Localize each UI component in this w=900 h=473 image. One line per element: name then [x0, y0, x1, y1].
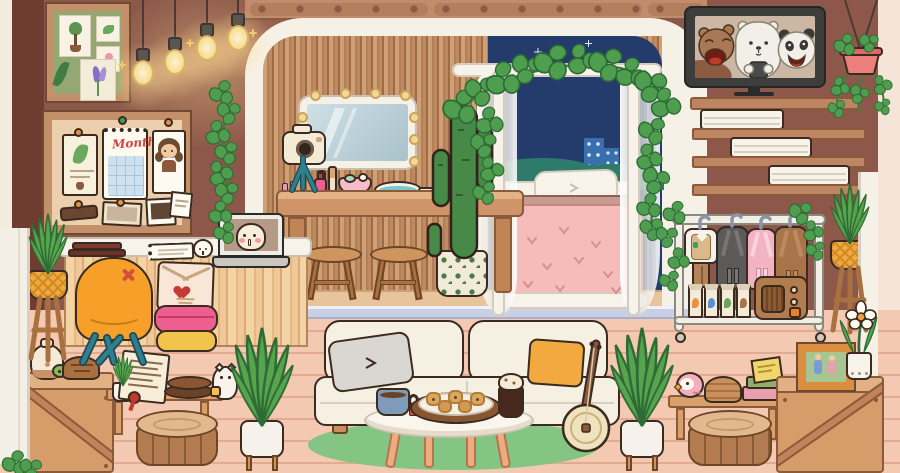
powder-puff	[358, 173, 368, 182]
vanity-table-leg	[494, 217, 512, 293]
mirror-bulb	[409, 134, 420, 145]
rack-top-bar[interactable]	[672, 214, 826, 225]
mirror-bulb	[370, 88, 381, 99]
vanity-table-top[interactable]	[276, 190, 524, 217]
round-box-pink[interactable]	[154, 305, 218, 333]
outfit-uniform[interactable]	[684, 228, 718, 264]
push-pin	[164, 118, 173, 127]
poster-line	[70, 176, 90, 178]
white-book-stack[interactable]	[700, 109, 784, 130]
edison-bulb[interactable]	[164, 49, 186, 75]
radio-dial[interactable]	[790, 298, 798, 306]
tv-stand-base	[734, 92, 774, 96]
portrait-dress	[162, 160, 176, 172]
tv-screen	[695, 16, 815, 78]
maroon-book-stack[interactable]	[68, 249, 126, 257]
rack-wheel	[675, 332, 686, 343]
room-scene: Month	[0, 0, 900, 473]
tree-pot	[70, 45, 81, 52]
push-pin	[74, 200, 83, 209]
butterfly-glyph	[103, 25, 114, 34]
turtle-figurine[interactable]	[62, 356, 100, 380]
poster-line	[70, 170, 94, 172]
star	[585, 40, 592, 47]
cookie[interactable]	[438, 400, 452, 413]
round-box-yellow[interactable]	[156, 330, 217, 352]
wood-tray[interactable]	[167, 376, 212, 390]
heart-icon	[178, 281, 194, 296]
white-book-stack[interactable]	[730, 137, 812, 158]
rack-post	[814, 216, 824, 332]
calendar-month-label: Month	[112, 134, 157, 151]
lipstick[interactable]	[328, 166, 337, 192]
portrait-face	[161, 144, 177, 158]
pinned-note[interactable]	[169, 191, 194, 219]
stool-seat[interactable]	[370, 246, 428, 263]
botany-card-butterfly	[96, 16, 120, 42]
pot-leg	[272, 455, 278, 471]
cookie[interactable]	[458, 400, 472, 413]
stool-rung	[314, 280, 350, 285]
white-book-stack[interactable]	[768, 165, 850, 186]
wall-calendar[interactable]: Month	[102, 128, 148, 200]
camera-button	[316, 137, 322, 142]
rack-post	[674, 216, 684, 332]
mirror-bulb	[400, 90, 411, 101]
camera[interactable]	[282, 131, 326, 165]
cookie[interactable]	[470, 392, 485, 406]
plant-stand-basket[interactable]	[28, 270, 68, 300]
pot-leg	[652, 455, 658, 471]
maroon-book-stack[interactable]	[72, 242, 122, 250]
beam-plate	[250, 3, 428, 16]
certificate-scroll[interactable]	[118, 350, 171, 405]
flower-pot[interactable]	[846, 352, 872, 380]
frappe-cream	[498, 373, 524, 391]
star	[534, 48, 542, 56]
wood-stump-top	[136, 410, 218, 438]
laptop-character	[236, 223, 266, 251]
cactus-pot[interactable]	[436, 250, 488, 297]
leaf-poster[interactable]	[62, 134, 98, 196]
mirror-bulb	[340, 88, 351, 99]
leaf-sprig	[52, 60, 70, 88]
radio-dial[interactable]	[790, 286, 798, 294]
pot-leg	[626, 455, 632, 471]
ceiling-beam	[245, 0, 707, 20]
snake-plant-pot[interactable]	[620, 420, 664, 458]
yellow-pillow[interactable]	[526, 338, 585, 388]
nail-polish-cap	[317, 172, 324, 180]
stool-seat[interactable]	[304, 246, 362, 263]
lucky-cat-figurine[interactable]	[212, 366, 238, 400]
mirror-bulb	[409, 156, 420, 167]
radio-grille	[761, 285, 785, 313]
edison-bulb[interactable]	[196, 35, 218, 61]
camera-top	[292, 124, 312, 134]
pot-leg	[246, 455, 252, 471]
diffuser-neck	[40, 338, 54, 348]
laptop[interactable]	[218, 213, 284, 257]
calendar-grid	[108, 156, 144, 196]
bench-leg	[114, 401, 123, 435]
mirror-bulb	[310, 90, 321, 101]
crocus-stem	[97, 80, 99, 96]
beam-plate	[434, 3, 642, 16]
wood-crate[interactable]	[776, 376, 884, 473]
mirror-bulb	[297, 112, 308, 123]
laptop-screen	[224, 219, 278, 251]
open-door-panel	[0, 228, 30, 464]
wall-shelf	[692, 184, 866, 196]
drink-carton[interactable]	[704, 284, 719, 318]
sheer-curtain-right[interactable]	[620, 74, 660, 314]
we-bare-bears-scene	[695, 16, 815, 78]
drink-carton[interactable]	[688, 284, 703, 318]
edison-bulb[interactable]	[132, 60, 154, 86]
lucky-cat-cup	[210, 386, 221, 397]
pink-bird[interactable]	[676, 372, 704, 398]
snake-plant-pot[interactable]	[240, 420, 284, 458]
orange-armchair[interactable]	[75, 257, 153, 341]
bench-leg	[676, 408, 685, 440]
push-pin	[74, 128, 83, 137]
tea-mug[interactable]	[376, 388, 410, 416]
laptop-base	[212, 256, 290, 268]
portrait-photo[interactable]	[152, 130, 186, 194]
bulletin-board[interactable]: Month	[44, 112, 190, 233]
push-pin	[116, 198, 125, 207]
wood-stump-top	[688, 410, 772, 438]
bed-post-right	[627, 70, 640, 316]
flatscreen-tv[interactable]	[686, 8, 824, 86]
egg-figurine[interactable]	[193, 239, 213, 258]
poster-leaf-glyph	[72, 143, 89, 165]
spiral-notebook[interactable]	[148, 242, 195, 261]
edison-bulb[interactable]	[227, 25, 249, 51]
mirror-bulb	[409, 112, 420, 123]
radio-button[interactable]	[789, 307, 801, 318]
compact-mint	[344, 174, 356, 183]
drink-carton[interactable]	[736, 284, 751, 318]
crocus-petal	[98, 66, 107, 81]
vintage-radio[interactable]	[754, 276, 808, 320]
push-pin	[118, 116, 127, 125]
chair-seat-crease	[85, 303, 143, 325]
wood-crate[interactable]	[18, 372, 114, 473]
rack-wheel	[815, 332, 826, 343]
poster-acorn	[76, 182, 84, 190]
botany-card-tree	[59, 15, 91, 57]
drink-carton[interactable]	[720, 284, 735, 318]
stool-rung	[380, 280, 416, 285]
wicker-basket[interactable]	[704, 376, 742, 403]
outfit-robe-grey[interactable]	[716, 226, 749, 290]
camera-lens-icon	[296, 140, 314, 158]
